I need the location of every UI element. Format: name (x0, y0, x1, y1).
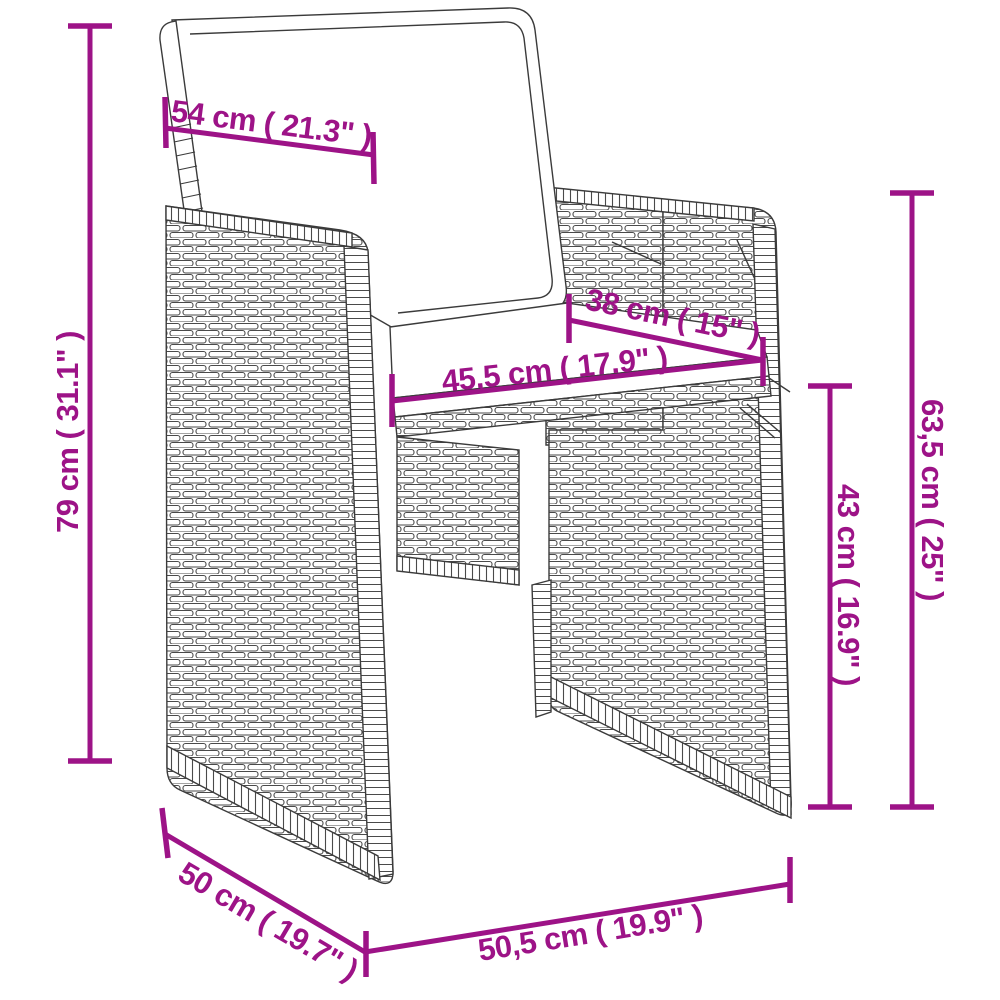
dim-side-depth-label: 50 cm ( 19.7" ) (172, 855, 364, 988)
dim-front-width: 50,5 cm ( 19.9" ) (365, 857, 790, 968)
right-panel-inner-edge-braid (532, 580, 551, 717)
tick (162, 808, 168, 858)
tick (165, 97, 166, 148)
dim-front-width-label: 50,5 cm ( 19.9" ) (476, 897, 705, 967)
dim-total-height: 79 cm ( 31.1" ) (50, 26, 112, 761)
tick (373, 132, 374, 184)
dim-back-height: 63,5 cm ( 25" ) (890, 193, 950, 807)
dim-back-height-label: 63,5 cm ( 25" ) (915, 399, 950, 601)
dim-seat-height: 43 cm ( 16.9" ) (808, 386, 866, 807)
dim-seat-height-label: 43 cm ( 16.9" ) (831, 484, 866, 686)
dim-total-height-label: 79 cm ( 31.1" ) (50, 331, 85, 533)
dimension-diagram: 54 cm ( 21.3" ) 79 cm ( 31.1" ) 38 cm ( … (0, 0, 1000, 1000)
chair-diagram-svg: 54 cm ( 21.3" ) 79 cm ( 31.1" ) 38 cm ( … (0, 0, 1000, 1000)
